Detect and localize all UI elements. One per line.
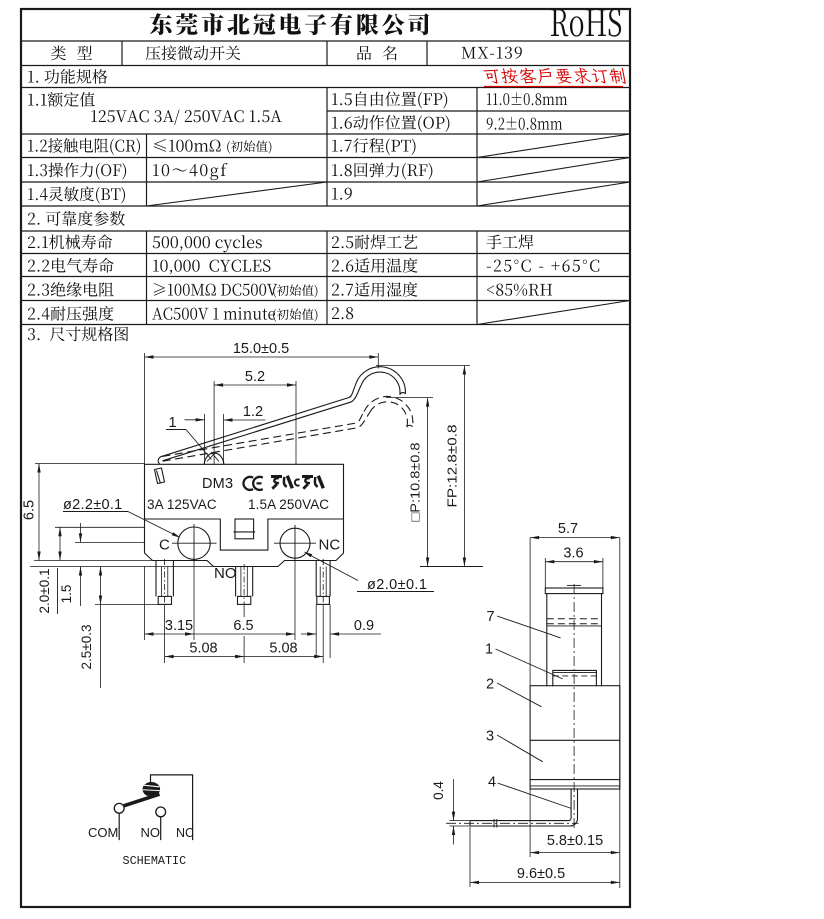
svg-text:NO: NO: [214, 565, 237, 582]
svg-text:6.5: 6.5: [22, 500, 38, 520]
svg-text:1: 1: [168, 415, 176, 431]
svg-text:5.2: 5.2: [245, 369, 265, 385]
svg-text:C: C: [159, 537, 170, 554]
svg-text:5.8±0.15: 5.8±0.15: [547, 833, 603, 849]
svg-text:15.0±0.5: 15.0±0.5: [233, 341, 289, 357]
svg-text:1: 1: [485, 642, 493, 658]
svg-text:0.4: 0.4: [431, 781, 446, 800]
svg-text:3: 3: [486, 729, 494, 745]
svg-text:NC: NC: [176, 826, 194, 840]
svg-text:9.6±0.5: 9.6±0.5: [517, 866, 565, 882]
svg-text:2: 2: [486, 677, 494, 693]
svg-text:5.7: 5.7: [558, 521, 578, 537]
svg-text:3.15: 3.15: [165, 618, 193, 634]
svg-text:7: 7: [486, 609, 494, 625]
svg-text:3.6: 3.6: [563, 546, 583, 562]
svg-text:FP:12.8±0.8: FP:12.8±0.8: [445, 425, 460, 508]
svg-text:DM3: DM3: [202, 476, 233, 492]
svg-text:3A 125VAC: 3A 125VAC: [147, 497, 217, 512]
svg-text:1.5: 1.5: [59, 585, 74, 604]
svg-text:□P:10.8±0.8: □P:10.8±0.8: [408, 443, 423, 522]
svg-text:6.5: 6.5: [233, 618, 253, 634]
svg-text:5.08: 5.08: [269, 641, 297, 657]
svg-text:NC: NC: [319, 537, 341, 554]
svg-text:4: 4: [488, 775, 496, 791]
svg-text:ø2.0±0.1: ø2.0±0.1: [367, 577, 427, 593]
svg-text:5.08: 5.08: [189, 641, 217, 657]
svg-text:1.2: 1.2: [243, 404, 263, 420]
svg-text:SCHEMATIC: SCHEMATIC: [123, 854, 187, 868]
svg-text:ø2.2±0.1: ø2.2±0.1: [63, 497, 123, 513]
svg-text:2.0±0.1: 2.0±0.1: [37, 569, 52, 614]
svg-text:0.9: 0.9: [354, 618, 374, 634]
svg-text:2.5±0.3: 2.5±0.3: [79, 625, 94, 670]
svg-text:NO: NO: [141, 825, 161, 840]
svg-text:1.5A 250VAC: 1.5A 250VAC: [248, 497, 329, 512]
svg-text:COM: COM: [88, 825, 118, 840]
